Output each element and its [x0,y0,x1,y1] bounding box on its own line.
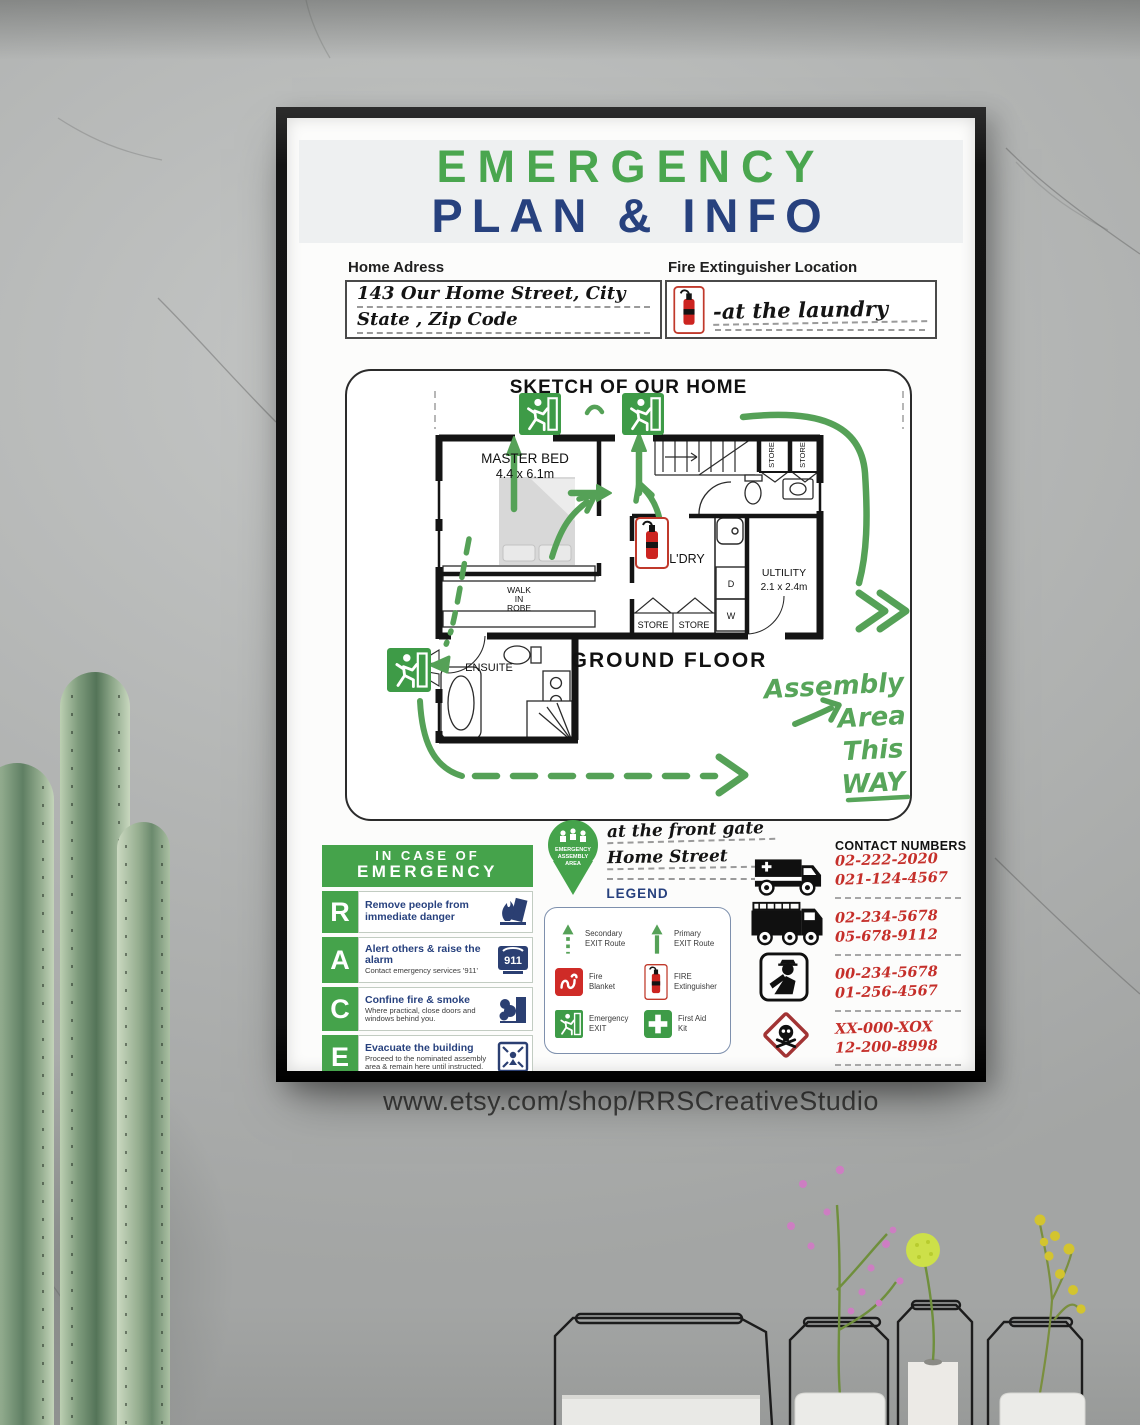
floor-plan: MASTER BED 4.4 x 6.1m WALK IN ROBE ENSUI… [347,371,914,823]
vase-pink [795,1393,885,1425]
race-letter-e: E [322,1035,358,1071]
race-row-remove: R Remove people from immediate danger [322,891,533,933]
room-label-utility-size: 2.1 x 2.4m [761,582,808,593]
shop-url: www.etsy.com/shop/RRSCreativeStudio [277,1086,985,1117]
home-address-box: 143 Our Home Street, City State , Zip Co… [345,280,662,339]
exit-sign-icon-top-right [622,393,664,435]
911-icon: 911 [497,944,529,976]
race-title-remove: Remove people from immediate danger [365,900,494,922]
bathroom-fixtures [699,475,813,514]
contact-number: 12-200-8998 [835,1036,967,1056]
label-store-bottom-2: STORE [679,620,710,630]
assembly-note-1: Assembly [761,668,906,705]
race-row-alert: A Alert others & raise the alarm Contact… [322,937,533,983]
legend-box: SecondaryEXIT Route PrimaryEXIT Route Fi… [544,907,731,1054]
assembly-note: Assembly Area This WAY [761,668,911,804]
room-label-laundry: L'DRY [669,552,705,566]
race-title-confine: Confine fire & smoke [365,995,494,1006]
yellow-berry-branch [1035,1215,1086,1394]
label-store-top-2: STORE [798,442,807,468]
dashed-writing-line [835,954,961,956]
first-aid-icon [644,1010,672,1038]
label-store-bottom-1: STORE [638,620,669,630]
emergency-poster: EMERGENCY PLAN & INFO Home Adress 143 Ou… [287,118,975,1071]
911-label: 911 [504,955,522,967]
poster-frame: EMERGENCY PLAN & INFO Home Adress 143 Ou… [276,107,986,1082]
contact-number: 00-234-5678 [835,962,967,982]
race-desc-evacuate: Proceed to the nominated assembly area &… [365,1055,494,1071]
assembly-location-line2: Home Street [607,846,757,871]
plan-extinguisher-icon [636,518,668,568]
home-address-label: Home Adress [348,259,444,276]
pom-flower [906,1233,958,1425]
dashed-writing-line [835,897,961,899]
poster-title-line1: EMERGENCY [299,142,963,192]
legend-extinguisher-icon [644,964,668,1000]
room-label-robe-3: ROBE [507,603,531,613]
race-title-evacuate: Evacuate the building [365,1043,494,1054]
label-store-top-1: STORE [767,442,776,468]
exit-sign-icon-top-left [519,393,561,435]
race-letter-a: A [322,937,358,983]
race-header-line1: IN CASE OF [322,848,533,863]
home-address-line2: State , Zip Code [357,310,650,334]
assembly-location-line1: at the front gate [607,818,776,844]
floor-label: GROUND FLOOR [571,649,768,672]
assembly-area-pin-icon: EMERGENCY ASSEMBLY AREA [546,818,600,896]
vase-arrangement [540,1150,1140,1425]
fire-blanket-icon [555,968,583,996]
poison-icon [759,1008,813,1062]
race-letter-r: R [322,891,358,933]
pink-flower-stems [787,1166,904,1395]
police-officer-icon [759,952,809,1002]
ambulance-icon [753,851,823,897]
vase-yellow [1000,1393,1085,1425]
pin-text-2: ASSEMBLY [558,854,589,860]
pin-text-1: EMERGENCY [555,847,591,853]
cactus-plant [0,655,178,1425]
race-header-line2: EMERGENCY [322,862,533,882]
contact-number: 021-124-4567 [835,868,967,888]
race-desc-alert: Contact emergency services '911' [365,967,494,975]
assembly-point-icon [497,1041,529,1071]
room-label-ensuite: ENSUITE [465,662,513,674]
label-washer: W [727,611,736,621]
room-label-master-bed: MASTER BED [481,451,569,466]
home-address-line1: 143 Our Home Street, City [357,284,650,308]
exit-sign-icon-left [387,648,431,692]
cactus-stalk [117,822,170,1425]
dashed-writing-line [835,1010,961,1012]
dashed-writing-line [715,329,925,331]
fire-extinguisher-icon [673,286,705,334]
race-header: IN CASE OF EMERGENCY [322,845,533,887]
room-label-master-bed-size: 4.4 x 6.1m [496,467,554,481]
race-letter-c: C [322,987,358,1031]
legend-item-first-aid: First AidKit [644,1010,706,1038]
contact-number: 02-222-2020 [835,849,967,869]
pin-text-3: AREA [565,861,581,867]
primary-route-icon [646,922,668,956]
assembly-note-2: Area [835,701,907,735]
cactus-stalk [0,763,54,1425]
dashed-writing-line [835,1064,961,1066]
room-label-utility: ULTILITY [762,567,806,579]
smoke-door-icon [497,993,529,1025]
race-row-evacuate: E Evacuate the building Proceed to the n… [322,1035,533,1071]
home-sketch-panel: SKETCH OF OUR HOME [345,369,912,821]
extinguisher-location-box: -at the laundry [665,280,937,339]
contact-number: 01-256-4567 [835,981,967,1001]
contact-number: 02-234-5678 [835,906,967,926]
label-dryer: D [728,579,735,589]
legend-title: LEGEND [544,886,731,901]
race-title-alert: Alert others & raise the alarm [365,944,494,966]
extinguisher-location-label: Fire Extinguisher Location [668,259,857,276]
legend-item-primary-route: PrimaryEXIT Route [646,922,714,956]
legend-item-emergency-exit: EmergencyEXIT [555,1010,628,1038]
concrete-planter [562,1395,760,1425]
legend-exit-icon [555,1010,583,1038]
secondary-route-icon [557,922,579,956]
contact-number: 05-678-9112 [835,925,967,945]
product-photo-scene: EMERGENCY PLAN & INFO Home Adress 143 Ou… [0,0,1140,1425]
race-row-confine: C Confine fire & smoke Where practical, … [322,987,533,1031]
legend-item-secondary-route: SecondaryEXIT Route [557,922,625,956]
bed [499,477,575,565]
legend-item-extinguisher: FIREExtinguisher [644,964,717,1000]
assembly-note-3: This [842,734,904,767]
poster-title-band: EMERGENCY PLAN & INFO [299,140,963,243]
legend-item-fire-blanket: FireBlanket [555,968,615,996]
dashed-writing-line [607,878,757,880]
race-desc-confine: Where practical, close doors and windows… [365,1007,494,1024]
contact-number: XX-000-XOX [835,1017,967,1037]
poster-title-line2: PLAN & INFO [299,192,963,239]
fire-truck-icon [749,899,825,947]
fire-door-icon [497,896,529,928]
extinguisher-location-value: -at the laundry [713,295,927,326]
